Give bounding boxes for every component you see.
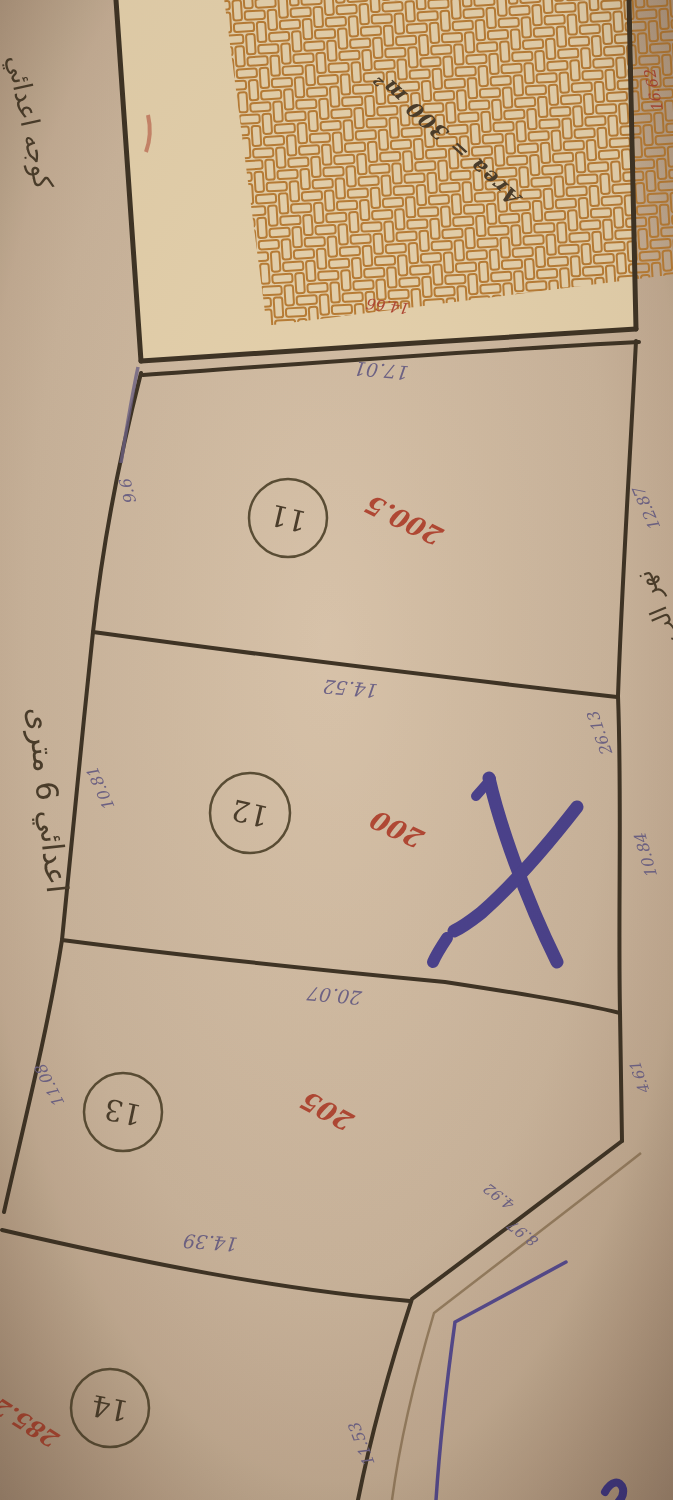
survey-map-photo: Area = 300 m² 14.66 16.62 كوجه اعدائي اع…	[0, 0, 673, 1500]
plot13-bottom-dim: 14.39	[182, 1230, 240, 1256]
plot14-number: 14	[89, 1388, 132, 1428]
